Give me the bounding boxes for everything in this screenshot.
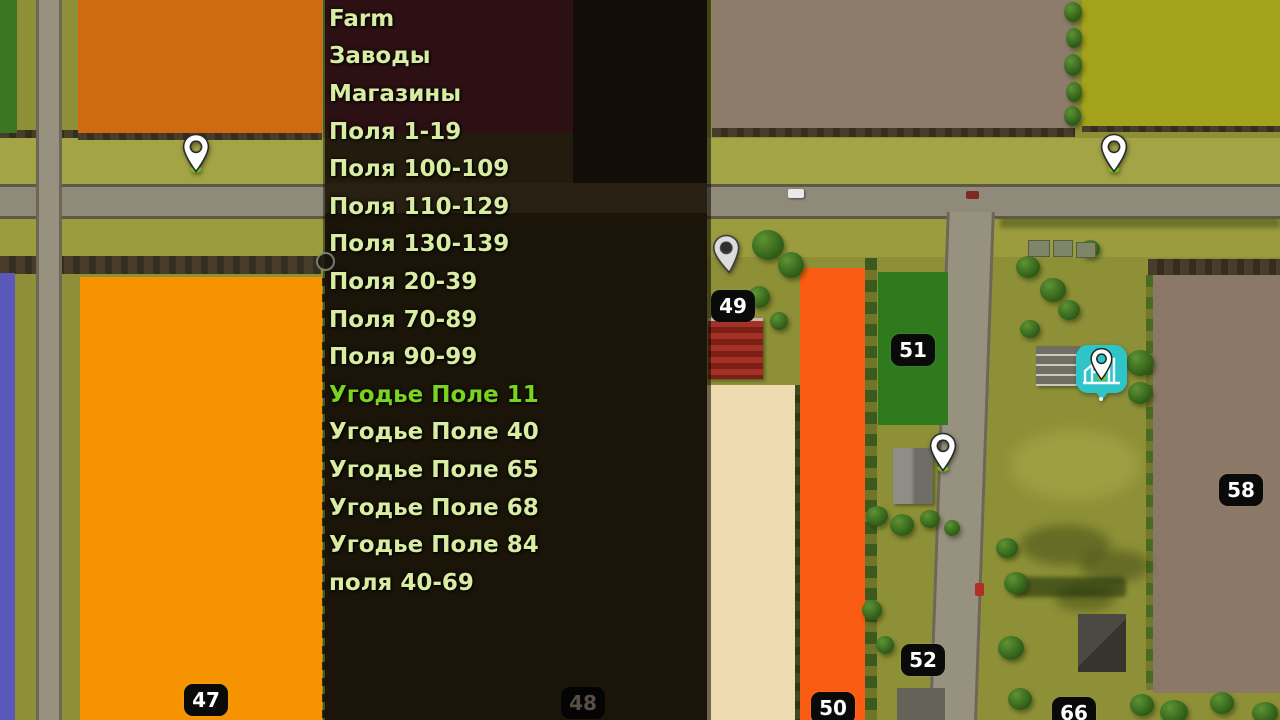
field-green-topleft bbox=[0, 0, 17, 133]
menu-item-label: Поля 110-129 bbox=[329, 194, 509, 220]
field-number-badge: 50 bbox=[811, 692, 855, 720]
menu-item[interactable]: Поля 90-99 bbox=[325, 338, 707, 376]
shed bbox=[1076, 242, 1096, 258]
menu-item-label: Поля 130-139 bbox=[329, 231, 509, 257]
tree bbox=[770, 312, 788, 330]
tree bbox=[866, 506, 888, 526]
cross-building bbox=[897, 688, 945, 720]
field-number-badge: 58 bbox=[1219, 474, 1263, 506]
tree bbox=[752, 230, 784, 260]
factory-marker[interactable] bbox=[1076, 345, 1127, 403]
field-number-label: 49 bbox=[719, 294, 747, 318]
marker-dot bbox=[1099, 397, 1103, 401]
tree bbox=[1004, 572, 1028, 594]
menu-item[interactable]: Угодье Поле 40 bbox=[325, 414, 707, 452]
map-pin-icon[interactable] bbox=[181, 133, 211, 173]
tree bbox=[1066, 82, 1082, 102]
marker-pin-icon bbox=[1089, 347, 1114, 381]
field-number-badge: 48 bbox=[561, 687, 605, 719]
grass-light-patch bbox=[1010, 430, 1140, 500]
menu-item-label: Поля 20-39 bbox=[329, 269, 477, 295]
field-number-label: 48 bbox=[569, 691, 597, 715]
tree bbox=[1128, 382, 1152, 404]
tree bbox=[1064, 54, 1082, 76]
red-vehicle bbox=[975, 583, 984, 596]
map-texture-text-smudge bbox=[1014, 577, 1126, 597]
field-number-badge: 66 bbox=[1052, 697, 1096, 720]
tree bbox=[998, 636, 1024, 660]
tree bbox=[1066, 28, 1082, 48]
hedge-50-51 bbox=[865, 258, 877, 720]
field-olive-topright bbox=[1082, 0, 1280, 126]
menu-item[interactable]: Магазины bbox=[325, 75, 707, 113]
menu-item-label: Поля 90-99 bbox=[329, 344, 477, 370]
map-pin-icon[interactable] bbox=[1099, 133, 1129, 173]
dark-red-car bbox=[966, 191, 979, 199]
teleport-menu-panel: Farm Заводы Магазины Поля 1-19 Поля 100-… bbox=[325, 0, 707, 720]
field-number-label: 50 bbox=[819, 696, 847, 720]
menu-item-label: Угодье Поле 40 bbox=[329, 419, 539, 445]
tree bbox=[1064, 2, 1082, 22]
menu-item-label: Заводы bbox=[329, 43, 431, 69]
field-cream bbox=[707, 385, 795, 720]
menu-item-label: Угодье Поле 65 bbox=[329, 457, 539, 483]
field-purple-strip bbox=[0, 273, 15, 720]
shed bbox=[1053, 240, 1073, 257]
tree bbox=[1008, 688, 1032, 710]
field-number-label: 47 bbox=[192, 688, 220, 712]
tree bbox=[876, 636, 894, 654]
teleport-menu-list: Farm Заводы Магазины Поля 1-19 Поля 100-… bbox=[325, 0, 707, 602]
menu-item[interactable]: Farm bbox=[325, 0, 707, 38]
tree bbox=[890, 514, 914, 536]
tree bbox=[862, 600, 882, 620]
menu-item-label: Поля 70-89 bbox=[329, 307, 477, 333]
gray-house-building bbox=[893, 448, 933, 504]
tree bbox=[920, 510, 940, 528]
road-vertical-left bbox=[36, 0, 62, 720]
menu-item[interactable]: Угодье Поле 65 bbox=[325, 451, 707, 489]
map-pin-icon[interactable] bbox=[928, 432, 958, 472]
field-number-badge: 47 bbox=[184, 684, 228, 716]
map-pin-icon[interactable] bbox=[710, 232, 745, 275]
tree bbox=[1064, 106, 1081, 126]
tree bbox=[1252, 702, 1278, 720]
menu-item[interactable]: Угодье Поле 68 bbox=[325, 489, 707, 527]
field-number-label: 58 bbox=[1227, 478, 1255, 502]
menu-item[interactable]: Угодье Поле 11 bbox=[325, 376, 707, 414]
tree bbox=[1058, 300, 1080, 320]
field-brown-top bbox=[712, 0, 1075, 128]
menu-item[interactable]: Поля 110-129 bbox=[325, 188, 707, 226]
field-number-label: 51 bbox=[899, 338, 927, 362]
menu-item-label: Farm bbox=[329, 6, 394, 32]
tree bbox=[1126, 350, 1154, 376]
poi-circle-icon bbox=[316, 252, 335, 271]
menu-item[interactable]: поля 40-69 bbox=[325, 564, 707, 602]
field-number-label: 66 bbox=[1060, 701, 1088, 720]
hedge-above-58 bbox=[1148, 259, 1280, 275]
menu-item[interactable]: Угодье Поле 84 bbox=[325, 526, 707, 564]
menu-item-label: Угодье Поле 11 bbox=[329, 382, 539, 408]
red-barn-building bbox=[708, 318, 763, 379]
menu-item-label: Угодье Поле 84 bbox=[329, 532, 539, 558]
tree bbox=[1016, 256, 1040, 278]
field-number-badge: 51 bbox=[891, 334, 935, 366]
menu-item[interactable]: Поля 100-109 bbox=[325, 150, 707, 188]
menu-item-label: Поля 1-19 bbox=[329, 119, 461, 145]
menu-item-label: Угодье Поле 68 bbox=[329, 495, 539, 521]
tree bbox=[944, 520, 960, 536]
field-orange-dark-top bbox=[78, 0, 322, 133]
white-car bbox=[788, 189, 804, 198]
field-50-orange-red bbox=[800, 268, 865, 720]
dark-house-building bbox=[1078, 614, 1126, 672]
menu-item[interactable]: Поля 70-89 bbox=[325, 301, 707, 339]
tree bbox=[1040, 278, 1066, 302]
shed bbox=[1028, 240, 1050, 257]
menu-item-label: Магазины bbox=[329, 81, 461, 107]
tree bbox=[1020, 320, 1040, 338]
menu-item[interactable]: Поля 130-139 bbox=[325, 226, 707, 264]
menu-item[interactable]: Поля 20-39 bbox=[325, 263, 707, 301]
tree bbox=[1130, 694, 1154, 716]
tree bbox=[778, 252, 804, 278]
field-number-label: 52 bbox=[909, 648, 937, 672]
menu-item-label: Поля 100-109 bbox=[329, 156, 509, 182]
menu-item[interactable]: Поля 1-19 bbox=[325, 113, 707, 151]
field-47-orange bbox=[80, 277, 322, 720]
field-number-badge: 49 bbox=[711, 290, 755, 322]
tree bbox=[1160, 700, 1188, 720]
field-number-badge: 52 bbox=[901, 644, 945, 676]
menu-item-label: поля 40-69 bbox=[329, 570, 474, 596]
tree bbox=[1210, 692, 1234, 714]
game-map: Farm Заводы Магазины Поля 1-19 Поля 100-… bbox=[0, 0, 1280, 720]
menu-item[interactable]: Заводы bbox=[325, 38, 707, 76]
tree bbox=[996, 538, 1018, 558]
gray-barn-building bbox=[1036, 346, 1080, 386]
